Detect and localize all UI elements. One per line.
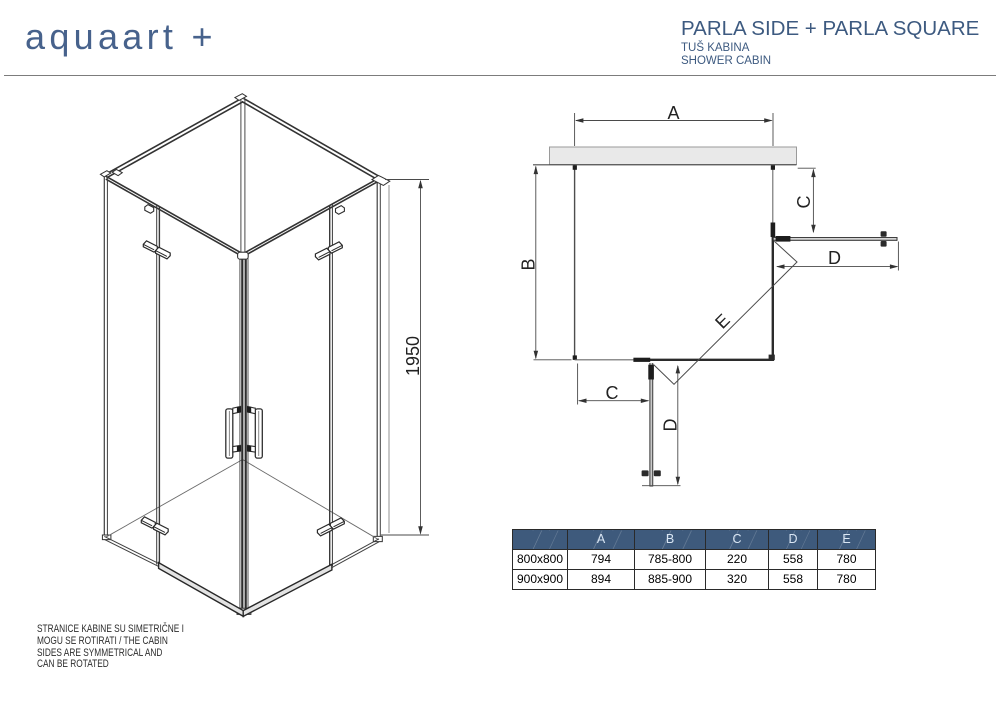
svg-text:C: C: [794, 196, 814, 209]
svg-text:B: B: [519, 258, 539, 270]
svg-text:E: E: [711, 310, 734, 333]
svg-text:A: A: [667, 103, 679, 123]
svg-text:D: D: [828, 248, 841, 268]
svg-text:C: C: [606, 383, 619, 403]
svg-text:1950: 1950: [403, 336, 423, 376]
svg-text:D: D: [661, 419, 681, 432]
